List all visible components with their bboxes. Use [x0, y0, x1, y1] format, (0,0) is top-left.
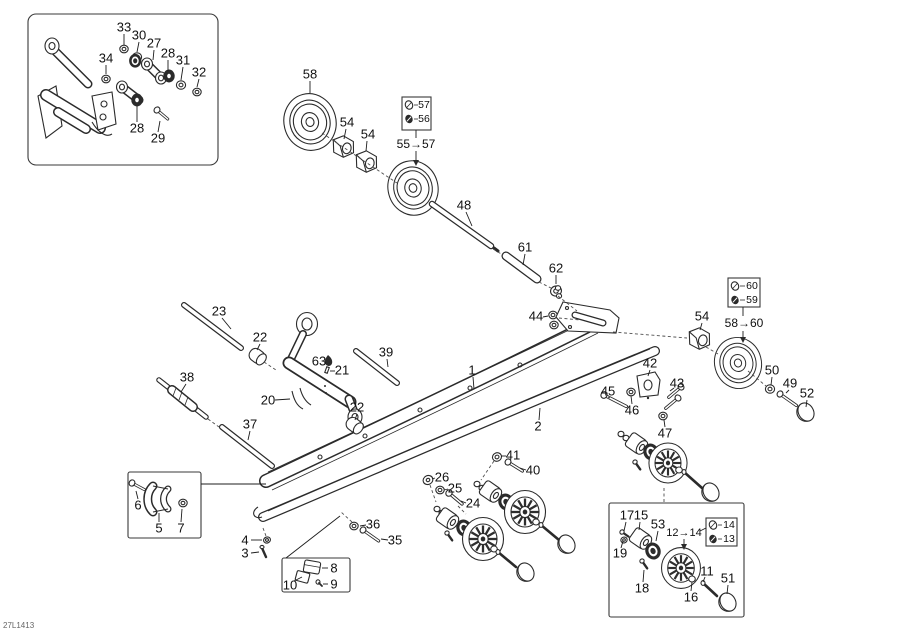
leader-49 [786, 390, 789, 393]
nut-44-b [550, 321, 558, 329]
inset-leader-stopper [286, 516, 340, 558]
leader-38 [181, 384, 186, 392]
callout-54: 54 [695, 308, 709, 323]
callout-24: 24 [466, 495, 480, 510]
idler-wheel-58-60 [709, 332, 767, 394]
callout-60: 60 [746, 280, 758, 292]
bearing-28 [129, 54, 141, 68]
callout-48: 48 [457, 197, 471, 212]
parts-diagram-page: 27L1413 333027283132342829585454575655→5… [0, 0, 900, 636]
callout-50: 50 [765, 362, 779, 377]
callout-12→14: 12→14 [666, 527, 701, 539]
callout-39: 39 [379, 344, 393, 359]
nut-32 [193, 88, 201, 96]
callout-41: 41 [506, 447, 520, 462]
nut-36 [350, 522, 358, 530]
axle-bracket-54-b [353, 149, 379, 174]
callout-27: 27 [147, 35, 161, 50]
nut-7 [179, 499, 187, 507]
callout-63: 63 [312, 353, 326, 368]
callout-6: 6 [134, 497, 141, 512]
callout-49: 49 [783, 375, 797, 390]
part-spacer-61 [506, 256, 537, 279]
callout-28: 28 [161, 45, 175, 60]
callout-22: 22 [253, 329, 267, 344]
wheel-group-c [618, 431, 722, 504]
nut-34 [102, 75, 110, 83]
callout-13: 13 [723, 533, 735, 545]
callout-17: 17 [620, 507, 634, 522]
callout-55→57: 55→57 [397, 137, 436, 151]
screw-3 [260, 545, 266, 557]
nut-33 [120, 45, 128, 53]
callout-28: 28 [130, 120, 144, 135]
leader-20 [275, 399, 290, 400]
callout-10: 10 [283, 577, 297, 592]
axle-bracket-54-c [686, 326, 712, 351]
leader-48 [466, 212, 472, 226]
callout-59: 59 [746, 294, 758, 306]
callout-25: 25 [448, 480, 462, 495]
axle-bolt-a [496, 550, 516, 567]
callout-7: 7 [177, 520, 184, 535]
callout-40: 40 [526, 462, 540, 477]
washer-31 [176, 81, 185, 89]
callout-8: 8 [330, 560, 337, 575]
callout-33: 33 [117, 19, 131, 34]
nut-47 [659, 412, 667, 420]
callout-23: 23 [212, 303, 226, 318]
washer-50 [765, 385, 774, 393]
callout-44: 44 [529, 308, 543, 323]
part-shaft-37 [222, 427, 272, 466]
callout-34: 34 [99, 50, 113, 65]
callout-5: 5 [155, 520, 162, 535]
wheel-cap-c [698, 480, 722, 505]
axle-bolt-b [539, 523, 559, 540]
callout-29: 29 [151, 130, 165, 145]
callout-1: 1 [468, 362, 475, 377]
wheel-cap-b [554, 532, 578, 557]
callout-43: 43 [670, 375, 684, 390]
drawing-number: 27L1413 [3, 621, 35, 630]
nut-25 [436, 486, 444, 494]
callout-31: 31 [176, 52, 190, 67]
callout-16: 16 [684, 589, 698, 604]
callout-18: 18 [635, 580, 649, 595]
bogie-wheel-d [662, 548, 701, 589]
callout-2: 2 [534, 418, 541, 433]
leader-39 [387, 359, 388, 367]
callout-61: 61 [518, 239, 532, 254]
part-rod-38 [159, 380, 206, 417]
washer-26 [422, 474, 435, 486]
callout-47: 47 [658, 425, 672, 440]
axle-bolt-c [682, 470, 702, 488]
bogie-wheel-c [649, 443, 687, 483]
callout-36: 36 [366, 516, 380, 531]
wheel-cap-52 [793, 400, 817, 425]
leader-61 [523, 254, 525, 265]
callout-62: 62 [549, 260, 563, 275]
wheel-cap-a [513, 560, 537, 585]
callout-54: 54 [340, 114, 354, 129]
callout-22: 22 [350, 399, 364, 414]
leader-3 [251, 552, 259, 553]
callout-11: 11 [700, 563, 714, 578]
leader-23 [222, 318, 231, 329]
callout-32: 32 [192, 64, 206, 79]
callout-58: 58 [303, 66, 317, 81]
callout-38: 38 [180, 369, 194, 384]
callout-45: 45 [601, 383, 615, 398]
callout-37: 37 [243, 416, 257, 431]
part-bracket-42 [637, 372, 660, 399]
callout-46: 46 [625, 402, 639, 417]
washer-41 [491, 451, 503, 463]
callout-9: 9 [330, 576, 337, 591]
callout-20: 20 [261, 392, 275, 407]
callout-58→60: 58→60 [725, 316, 764, 330]
nut-46 [627, 388, 635, 396]
bolt-43-b [664, 394, 683, 411]
callout-52: 52 [800, 385, 814, 400]
callout-21: 21 [335, 362, 349, 377]
callout-42: 42 [643, 355, 657, 370]
callout-54: 54 [361, 126, 375, 141]
leader-54 [366, 141, 367, 151]
leader-44 [543, 316, 548, 317]
idler-wheel-58 [278, 88, 343, 157]
callout-53: 53 [651, 516, 665, 531]
diagram-canvas: 27L1413 333027283132342829585454575655→5… [0, 0, 900, 636]
axle-bracket-54-a [330, 134, 356, 159]
leader-37 [248, 431, 250, 440]
callout-15: 15 [634, 507, 648, 522]
callout-19: 19 [613, 545, 627, 560]
callout-30: 30 [132, 27, 146, 42]
callout-51: 51 [721, 570, 735, 585]
leader-50 [771, 377, 772, 385]
callout-57: 57 [418, 99, 430, 111]
washer-4 [263, 536, 272, 544]
callout-3: 3 [241, 545, 248, 560]
nut-16 [689, 576, 696, 582]
callout-56: 56 [418, 113, 430, 125]
callout-35: 35 [388, 532, 402, 547]
idler-wheel-55-57 [382, 155, 444, 221]
callout-14: 14 [723, 519, 735, 531]
